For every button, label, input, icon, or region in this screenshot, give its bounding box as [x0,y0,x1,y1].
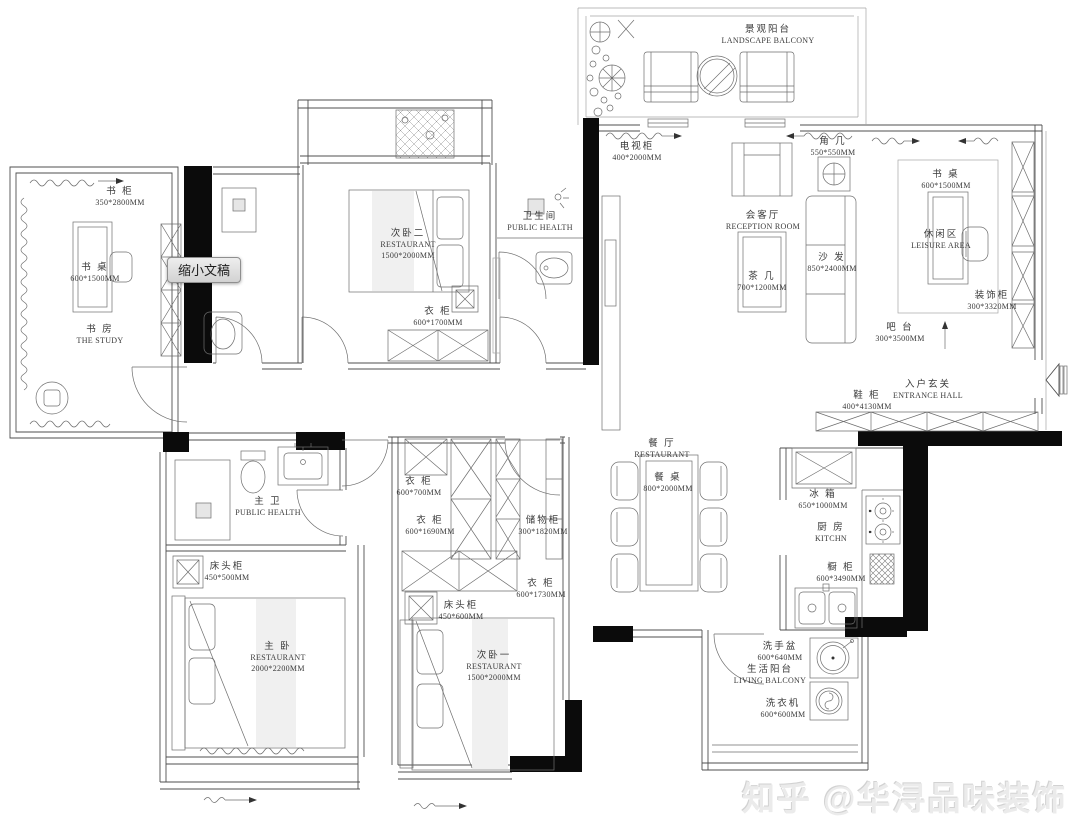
label-bedroom2: 次卧二RESTAURANT1500*2000MM [380,228,435,261]
label-bath-public: 卫生间PUBLIC HEALTH [507,211,573,234]
label-dining-table: 餐 桌800*2000MM [643,472,692,495]
label-bedside-1: 床头柜450*600MM [439,600,484,623]
floor-plan-drawing [0,0,1068,840]
reception-room [602,143,856,430]
master-bath [175,443,328,540]
label-wardrobe-c: 衣 柜600*1730MM [516,578,565,601]
kitchen [792,448,903,628]
label-shoe-cabinet: 鞋 柜400*4130MM [842,390,891,413]
label-study-desk: 书 桌600*1500MM [70,262,119,285]
label-deco-cabinet: 装饰柜300*3320MM [967,290,1016,313]
label-bedroom1: 次卧一RESTAURANT1500*2000MM [466,650,521,683]
tooltip-zoom-out-document: 缩小文稿 [167,257,241,283]
floor-plan-page: 书 柜350*2800MM 书 桌600*1500MM 书 房THE STUDY… [0,0,1068,840]
label-master-bath: 主 卫PUBLIC HEALTH [235,496,301,519]
balcony-armchair [740,52,794,102]
label-study-room: 书 房THE STUDY [77,324,124,347]
label-reception: 会客厅RECEPTION ROOM [726,210,800,233]
entrance-hall [816,412,1038,431]
label-storage-cabinet: 储物柜300*1820MM [518,515,567,538]
balcony-armchair [644,52,698,102]
plants [587,20,634,116]
label-sofa: 沙 发850*2400MM [807,252,856,275]
label-washer: 洗衣机600*600MM [761,698,806,721]
label-tea-table: 茶 几700*1200MM [737,271,786,294]
label-fridge: 冰 箱650*1000MM [798,489,847,512]
label-landscape-balcony: 景观阳台LANDSCAPE BALCONY [722,24,815,47]
label-wardrobe-b: 衣 柜600*1690MM [405,515,454,538]
label-kitchen-cabinet: 橱 柜600*3490MM [816,562,865,585]
label-wardrobe2: 衣 柜600*1700MM [413,306,462,329]
study-room [36,222,181,414]
label-living-balcony: 生活阳台LIVING BALCONY [734,664,806,687]
label-wardrobe-a: 衣 柜600*700MM [397,476,442,499]
label-leisure-desk: 书 桌600*1500MM [921,169,970,192]
label-dining: 餐 厅RESTAURANT [634,438,689,461]
sliding-door [648,119,785,127]
label-tv-cabinet: 电视柜400*2000MM [612,141,661,164]
label-bedside-master: 床头柜450*500MM [205,561,250,584]
watermark: 知乎 @华浔品味装饰 [742,772,1067,820]
label-leisure-area: 休闲区LEISURE AREA [911,229,971,252]
label-master-bed: 主 卧RESTAURANT2000*2200MM [250,641,305,674]
label-study-cabinet: 书 柜350*2800MM [95,186,144,209]
label-entrance-hall: 入户玄关ENTRANCE HALL [893,379,963,402]
label-kitchen: 厨 房KITCHN [815,522,847,545]
balcony-round-table [697,56,737,96]
label-corner-table: 角 几550*550MM [811,136,856,159]
label-bar: 吧 台300*3500MM [875,322,924,345]
label-wash-basin: 洗手盆600*640MM [758,641,803,664]
